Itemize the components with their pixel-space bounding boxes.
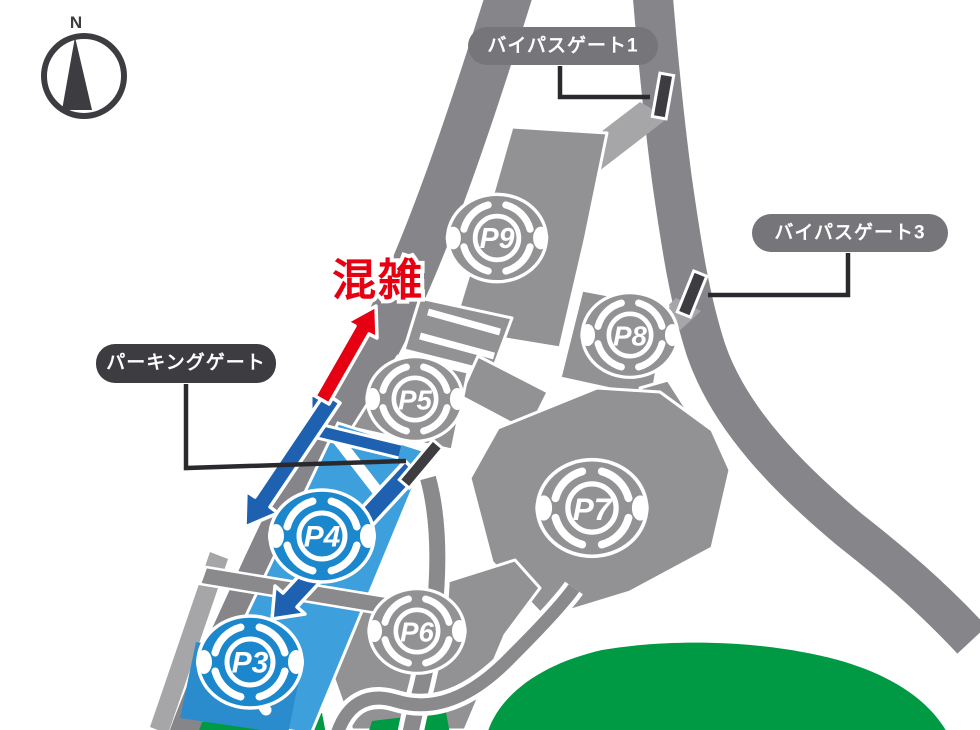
svg-text:P3: P3 [232,647,269,680]
gate-label-bypass-1-text: バイパスゲート1 [487,35,638,57]
svg-text:P9: P9 [480,223,515,255]
gate-label-parking: パーキングゲート [96,344,276,383]
connector-bypass-gate-1 [560,66,650,97]
parking-lot-icon-p3: P3 [196,616,304,708]
gate-label-bypass-1: バイパスゲート1 [468,27,658,65]
svg-text:P7: P7 [573,491,613,527]
svg-text:P4: P4 [304,521,341,554]
parking-lot-icon-p7: P7 [535,460,648,557]
green-area-large [487,643,948,730]
svg-text:P6: P6 [400,616,434,647]
parking-lot-icon-p9: P9 [446,194,549,281]
parking-lot-icon-p6: P6 [367,589,466,674]
compass: N [44,13,124,116]
gate-label-bypass-3-text: バイパスゲート3 [774,222,925,244]
map-svg: 混雑 バイパスゲート1 バイパスゲート3 パーキングゲート P9 P8 P5 P… [0,0,980,730]
gate-label-bypass-3: バイパスゲート3 [752,214,948,252]
congestion-label: 混雑 [332,256,424,305]
compass-label: N [70,13,82,32]
parking-lot-icon-p5: P5 [365,357,464,442]
svg-text:P5: P5 [398,384,432,415]
parking-lot-icon-p8: P8 [580,293,679,378]
parking-map: 混雑 バイパスゲート1 バイパスゲート3 パーキングゲート P9 P8 P5 P… [0,0,980,730]
parking-lot-icon-p4: P4 [268,490,376,582]
gate-label-parking-text: パーキングゲート [106,351,265,374]
connector-bypass-gate-3 [708,253,848,295]
svg-text:P8: P8 [613,320,647,351]
